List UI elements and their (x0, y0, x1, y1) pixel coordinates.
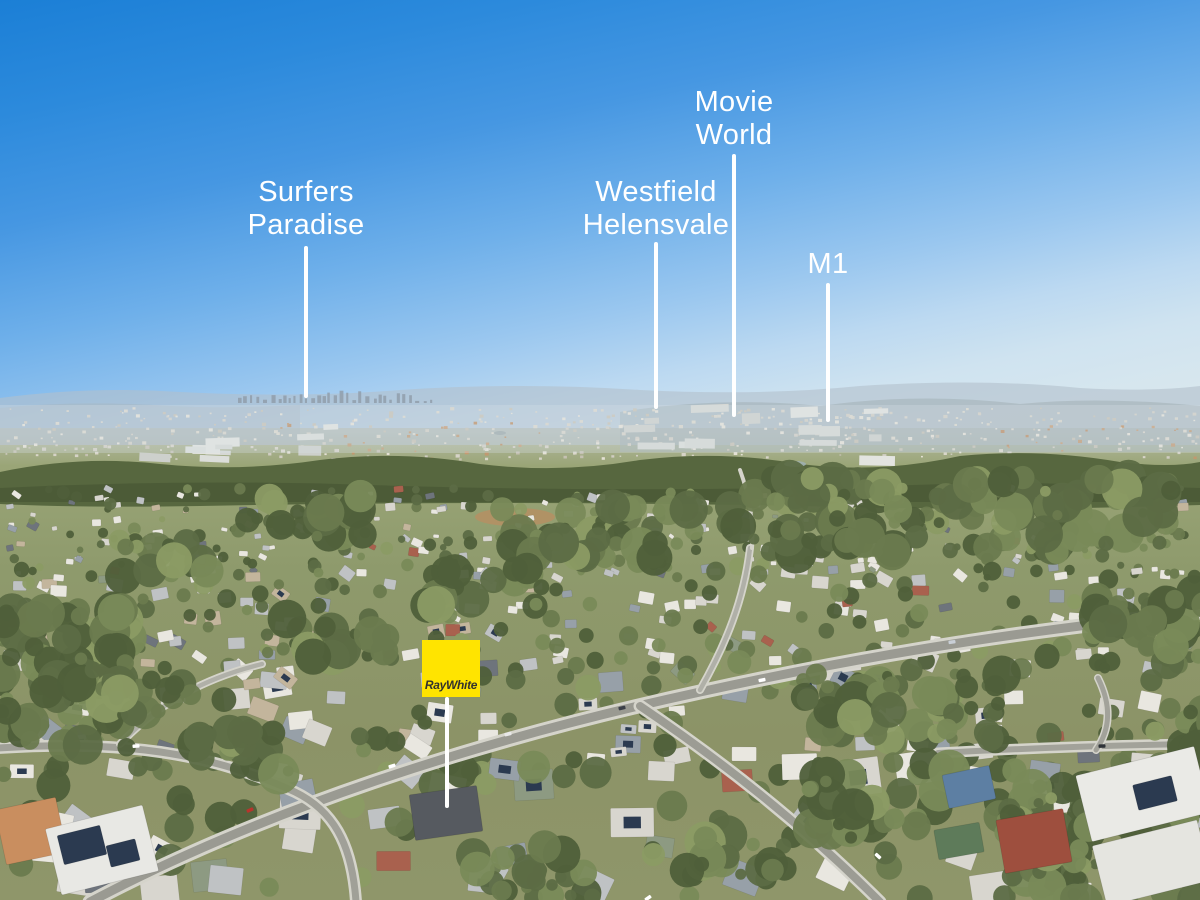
callout-m1: M1 (808, 248, 849, 281)
callout-label: Surfers (248, 176, 365, 209)
leader-line-surfers-paradise (304, 246, 308, 398)
aerial-photo: Surfers Paradise Westfield Helensvale Mo… (0, 0, 1200, 900)
leader-line-movie-world (732, 154, 736, 417)
leader-line-property (445, 697, 449, 808)
callout-label: World (695, 119, 774, 152)
callout-label: Movie (695, 86, 774, 119)
callout-label: Paradise (248, 209, 365, 242)
callout-label: Helensvale (583, 209, 729, 242)
callout-movie-world: Movie World (695, 86, 774, 152)
raywhite-logo-text: RayWhite (422, 678, 480, 692)
raywhite-sign-marker: RayWhite (422, 640, 480, 697)
callout-westfield-helensvale: Westfield Helensvale (583, 176, 729, 242)
callout-label: Westfield (583, 176, 729, 209)
leader-line-m1 (826, 283, 830, 422)
leader-line-westfield-helensvale (654, 242, 658, 409)
callout-surfers-paradise: Surfers Paradise (248, 176, 365, 242)
callout-label: M1 (808, 248, 849, 281)
scenery-svg (0, 0, 1200, 900)
